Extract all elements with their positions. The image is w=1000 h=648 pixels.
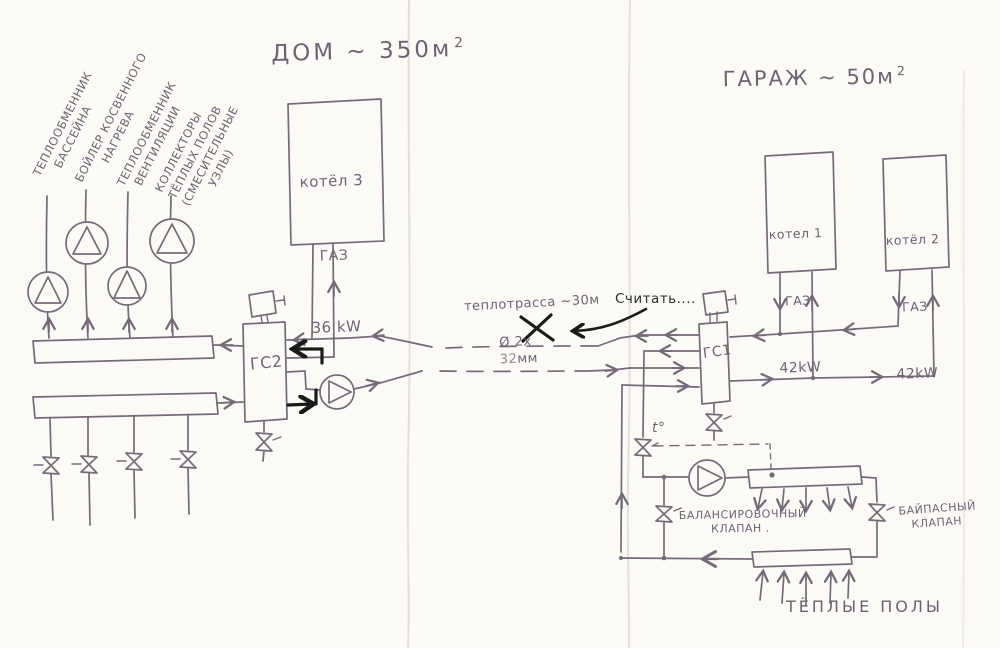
air-vent-icon-gs2 bbox=[249, 291, 285, 322]
pump-icon-house-main bbox=[320, 375, 354, 409]
garage-boiler1-power: 42kW bbox=[768, 358, 833, 378]
heat-main-note: Считать.... bbox=[615, 291, 696, 309]
garage-boiler1-label: котел 1 ГАЗ 42kW bbox=[762, 183, 834, 420]
heat-main-diameter: Ø 2х 32мм bbox=[480, 317, 539, 387]
drain-valve-icon-gs2 bbox=[256, 422, 281, 461]
pump-icon-pool bbox=[28, 272, 68, 312]
house-return-manifold bbox=[33, 393, 243, 418]
pump-icon-ventilation bbox=[108, 267, 146, 305]
valve-icon-drop-4 bbox=[171, 451, 196, 468]
diameter-prefix: Ø 2х bbox=[499, 334, 532, 350]
house-boiler-label: котёл 3 ГАЗ 36 kW bbox=[288, 129, 381, 381]
balancing-valve-icon bbox=[656, 506, 681, 522]
drain-valve-icon-gs1 bbox=[706, 404, 731, 440]
house-boiler-power: 36 kW bbox=[294, 317, 379, 339]
house-boiler-fuel: ГАЗ bbox=[292, 245, 377, 266]
pump-icon-dhw bbox=[66, 222, 108, 264]
garage-boiler2-label: котёл 2 ГАЗ 42kW bbox=[880, 189, 950, 426]
house-title-text: ДОМ ~ 350м bbox=[271, 36, 453, 67]
pump-icon-garage-floor bbox=[689, 460, 725, 496]
house-title: ДОМ ~ 350м2 bbox=[229, 5, 467, 101]
house-title-superscript: 2 bbox=[454, 35, 466, 51]
valve-icon-drop-2 bbox=[72, 456, 97, 473]
diameter-crossed-value: 32 bbox=[500, 352, 518, 368]
balancing-valve-label: БАЛАНСИРОВОЧНЫЙ КЛАПАН . bbox=[679, 507, 807, 538]
valve-icon-drop-3 bbox=[117, 453, 142, 470]
warm-floor-label: ТЁПЛЫЕ ПОЛЫ bbox=[786, 597, 943, 618]
garage-boiler1-name: котел 1 bbox=[763, 225, 828, 243]
floor-supply-manifold bbox=[748, 466, 862, 510]
garage-boiler1-fuel: ГАЗ bbox=[766, 292, 831, 310]
thermostatic-valve-icon bbox=[635, 439, 658, 456]
note-arrow-icon bbox=[574, 309, 646, 331]
bypass-valve-label: БАЙПАСНЫЙ КЛАПАН bbox=[898, 499, 977, 533]
thermostatic-valve-label: t° bbox=[652, 419, 666, 437]
garage-title: ГАРАЖ ~ 50м2 bbox=[687, 36, 907, 122]
pump-icon-floors bbox=[150, 219, 194, 263]
garage-boiler2-fuel: ГАЗ bbox=[884, 298, 947, 316]
garage-title-superscript: 2 bbox=[897, 63, 907, 78]
air-vent-icon-gs1 bbox=[703, 291, 736, 322]
house-return-drops bbox=[50, 416, 189, 525]
house-boiler-name: котёл 3 bbox=[289, 170, 374, 192]
garage-boiler2-power: 42kW bbox=[886, 364, 949, 384]
house-load-pipes bbox=[46, 190, 173, 338]
heating-schematic-sketch: ДОМ ~ 350м2 ГАРАЖ ~ 50м2 ТЕПЛООБМЕННИК Б… bbox=[0, 0, 1000, 648]
separator-gs2-label: ГС2 bbox=[249, 351, 284, 375]
bypass-valve-icon bbox=[869, 504, 894, 521]
valve-icon-drop-1 bbox=[34, 457, 59, 474]
garage-title-text: ГАРАЖ ~ 50м bbox=[722, 65, 895, 92]
house-supply-manifold bbox=[33, 336, 243, 363]
diameter-suffix: мм bbox=[517, 351, 538, 367]
heat-main-pipes bbox=[380, 335, 699, 371]
garage-boiler2-name: котёл 2 bbox=[881, 231, 944, 249]
